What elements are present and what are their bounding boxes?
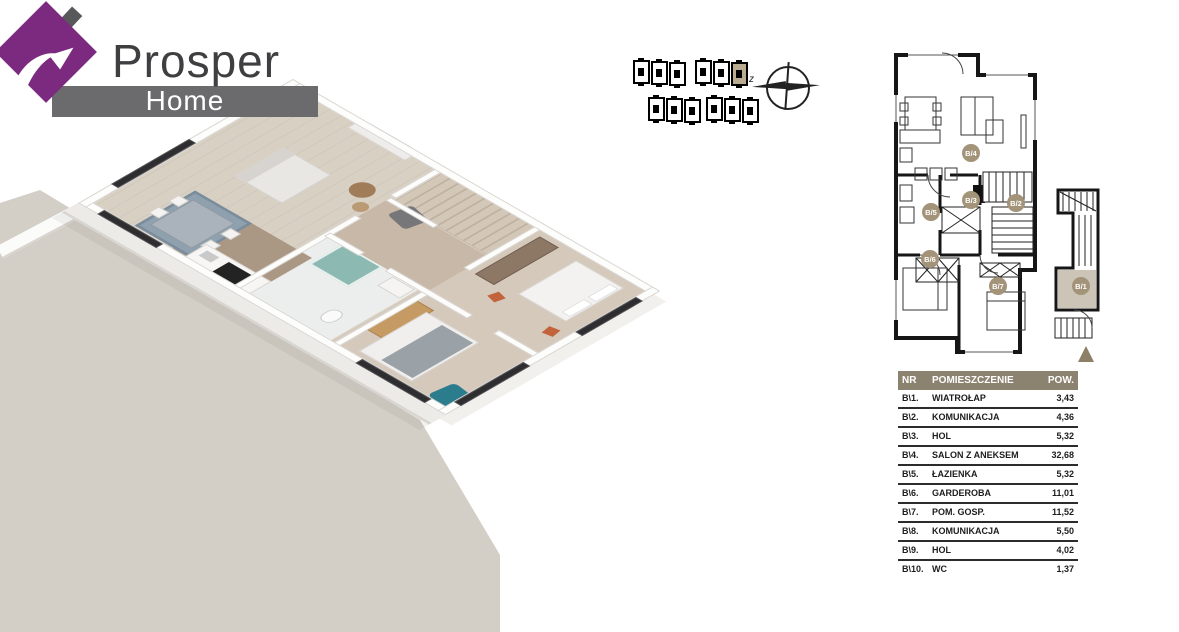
floorplan-marketing-image: Prosper Home z [0, 0, 1179, 632]
building-icon-highlighted [731, 62, 748, 86]
building-icon [724, 98, 741, 122]
rooms-table: NR POMIESZCZENIE POW. B\1. WIATROŁAP 3,4… [898, 371, 1078, 578]
table-row: B\4. SALON Z ANEKSEM 32,68 [898, 447, 1078, 466]
brand-name: Prosper [112, 34, 280, 88]
svg-text:B/1: B/1 [1075, 282, 1087, 291]
table-row: B\2. KOMUNIKACJA 4,36 [898, 409, 1078, 428]
building-icon [669, 62, 686, 86]
building-icon [706, 97, 723, 121]
compass-west-label: z [749, 74, 754, 85]
floorplan-2d: B/4 B/3 B/2 B/5 B/6 B/7 B/1 [880, 45, 1115, 370]
table-row: B\10. WC 1,37 [898, 561, 1078, 578]
table-row: B\8. KOMUNIKACJA 5,50 [898, 523, 1078, 542]
building-icon [666, 98, 683, 122]
table-row: B\9. HOL 4,02 [898, 542, 1078, 561]
svg-text:B/2: B/2 [1010, 199, 1022, 208]
svg-text:B/5: B/5 [925, 208, 937, 217]
building-icon [695, 60, 712, 84]
table-header: NR POMIESZCZENIE POW. [898, 371, 1078, 390]
svg-text:B/3: B/3 [965, 196, 977, 205]
table-row: B\5. ŁAZIENKA 5,32 [898, 466, 1078, 485]
brand-subname: Home [52, 86, 318, 117]
svg-text:B/7: B/7 [992, 282, 1004, 291]
compass-needle-east [786, 81, 820, 91]
building-icon [651, 61, 668, 85]
building-icon [648, 97, 665, 121]
table-row: B\1. WIATROŁAP 3,43 [898, 390, 1078, 409]
building-icon [713, 61, 730, 85]
header-nr: NR [898, 371, 932, 390]
building-icon [633, 60, 650, 84]
header-room: POMIESZCZENIE [932, 371, 1040, 390]
entrance-arrow-icon [1078, 346, 1094, 362]
building-icon [742, 99, 759, 123]
svg-text:B/4: B/4 [965, 149, 978, 158]
table-row: B\7. POM. GOSP. 11,52 [898, 504, 1078, 523]
building-icon [684, 99, 701, 123]
header-area: POW. [1040, 371, 1078, 390]
table-row: B\3. HOL 5,32 [898, 428, 1078, 447]
table-row: B\6. GARDEROBA 11,01 [898, 485, 1078, 504]
svg-text:B/6: B/6 [924, 255, 936, 264]
